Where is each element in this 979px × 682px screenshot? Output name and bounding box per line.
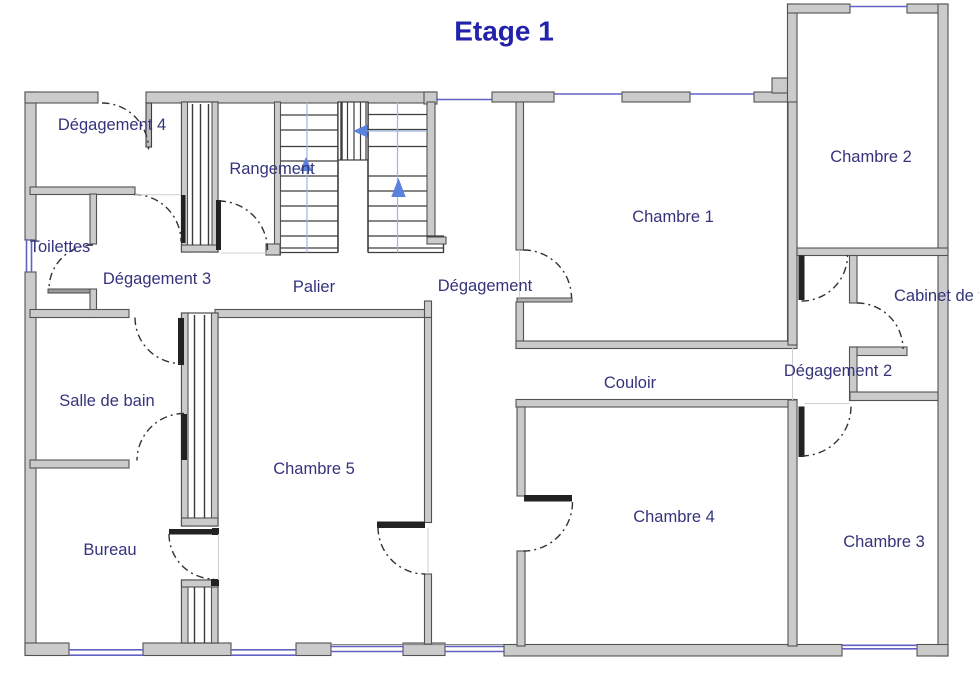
svg-text:Couloir: Couloir	[604, 374, 657, 392]
svg-text:Chambre 3: Chambre 3	[843, 533, 925, 551]
svg-text:Salle de bain: Salle de bain	[59, 392, 154, 410]
svg-text:Dégagement 4: Dégagement 4	[58, 116, 166, 134]
svg-text:Chambre 2: Chambre 2	[830, 148, 912, 166]
svg-text:Chambre 1: Chambre 1	[632, 208, 714, 226]
svg-text:Dégagement 2: Dégagement 2	[784, 362, 892, 380]
svg-text:Toilettes: Toilettes	[30, 238, 91, 256]
svg-text:Rangement: Rangement	[229, 160, 315, 178]
svg-text:Dégagement: Dégagement	[438, 277, 533, 295]
svg-text:Etage 1: Etage 1	[454, 16, 554, 47]
svg-text:Chambre 5: Chambre 5	[273, 460, 355, 478]
svg-text:Cabinet de toilette: Cabinet de toilette	[894, 287, 979, 305]
svg-text:Dégagement 3: Dégagement 3	[103, 270, 211, 288]
svg-text:Palier: Palier	[293, 278, 336, 296]
svg-text:Chambre 4: Chambre 4	[633, 508, 715, 526]
svg-text:Bureau: Bureau	[83, 541, 136, 559]
